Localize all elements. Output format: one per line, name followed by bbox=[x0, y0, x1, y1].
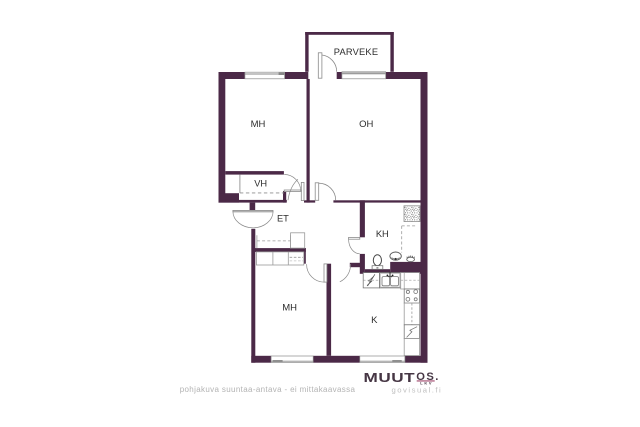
svg-text:MH: MH bbox=[282, 302, 297, 313]
svg-text:MH: MH bbox=[251, 119, 266, 130]
svg-text:KH: KH bbox=[376, 229, 389, 239]
svg-text:govisual.fi: govisual.fi bbox=[392, 385, 443, 394]
svg-text:PARVEKE: PARVEKE bbox=[334, 47, 378, 57]
svg-text:ET: ET bbox=[277, 214, 289, 224]
svg-text:pohjakuva suuntaa-antava - ei: pohjakuva suuntaa-antava - ei mittakaava… bbox=[180, 385, 356, 394]
svg-text:OH: OH bbox=[359, 119, 373, 130]
svg-text:MUUT: MUUT bbox=[364, 371, 416, 386]
svg-text:VH: VH bbox=[254, 178, 267, 188]
svg-text:K: K bbox=[371, 315, 378, 326]
